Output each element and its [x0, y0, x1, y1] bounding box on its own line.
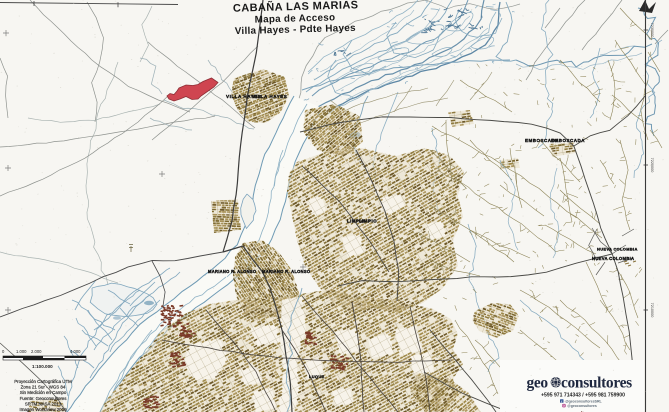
svg-text:Sin Medición en Campo: Sin Medición en Campo	[20, 390, 67, 395]
svg-text:consultores: consultores	[561, 375, 632, 392]
svg-text:@geoconsultores: @geoconsultores	[567, 404, 597, 408]
svg-text:2.000: 2.000	[31, 349, 42, 354]
svg-text:LUQUE: LUQUE	[309, 374, 325, 379]
svg-text:7230000: 7230000	[650, 23, 654, 38]
svg-text:Fuente: Geoconsultores: Fuente: Geoconsultores	[20, 396, 68, 401]
svg-text:1:100.000: 1:100.000	[32, 364, 53, 369]
svg-text:@geoconsultoresSRL: @geoconsultoresSRL	[565, 400, 602, 404]
svg-text:1.000: 1.000	[16, 349, 27, 354]
svg-text:SRTM NASA 2013: SRTM NASA 2013	[25, 401, 62, 406]
svg-text:NUEVA COLOMBIA: NUEVA COLOMBIA	[592, 256, 634, 261]
svg-text:7210000: 7210000	[650, 303, 654, 318]
svg-text:Zona 21 Sur - WGS 84: Zona 21 Sur - WGS 84	[21, 385, 66, 390]
svg-text:NUEVA COLOMBIA: NUEVA COLOMBIA	[597, 247, 638, 252]
svg-text:geo: geo	[527, 375, 549, 392]
svg-text:VILLA HAYES: VILLA HAYES	[252, 94, 287, 99]
svg-text:MARIANO R. ALONSO: MARIANO R. ALONSO	[208, 269, 257, 274]
svg-text:Proyección Cartográfica UTM: Proyección Cartográfica UTM	[14, 379, 72, 384]
svg-text:+595 971 714343 / +595 981 759: +595 971 714343 / +595 981 759900	[541, 392, 625, 398]
svg-text:MARIANO R. ALONSO: MARIANO R. ALONSO	[262, 269, 311, 274]
svg-text:LIMPIO: LIMPIO	[359, 219, 377, 224]
svg-text:4.000: 4.000	[70, 349, 81, 354]
svg-text:EMBOSCADA: EMBOSCADA	[551, 138, 585, 143]
svg-text:Imagen Worldview 2019: Imagen Worldview 2019	[19, 407, 67, 412]
